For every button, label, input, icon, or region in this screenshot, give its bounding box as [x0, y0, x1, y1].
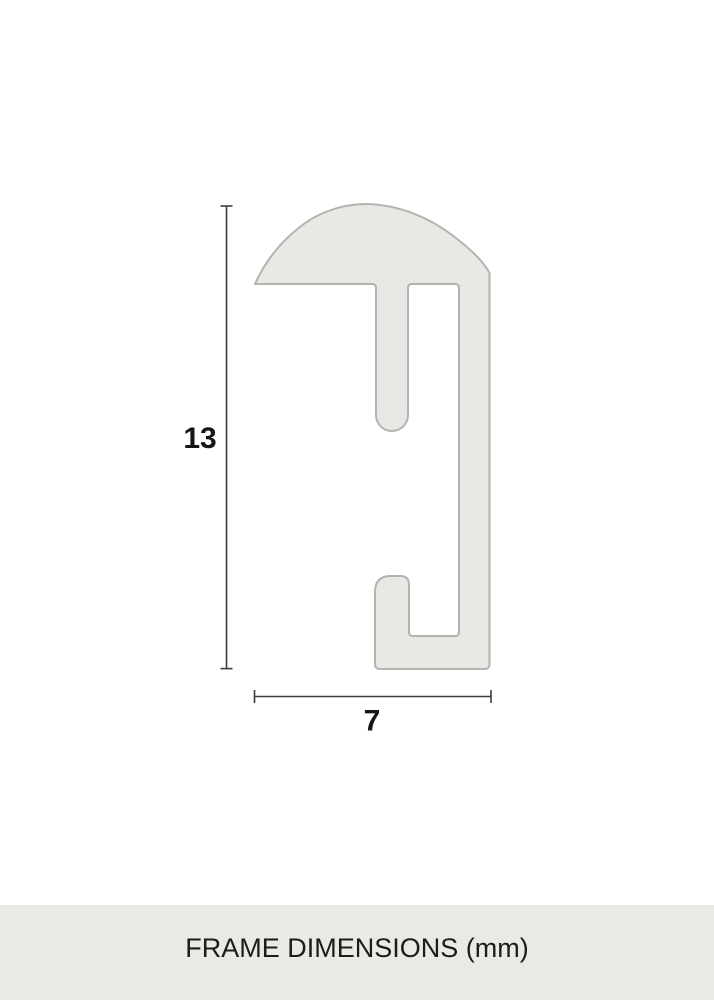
svg-text:FRAME DIMENSIONS (mm): FRAME DIMENSIONS (mm)	[185, 933, 529, 963]
svg-text:7: 7	[364, 705, 381, 738]
svg-text:13: 13	[183, 422, 216, 455]
